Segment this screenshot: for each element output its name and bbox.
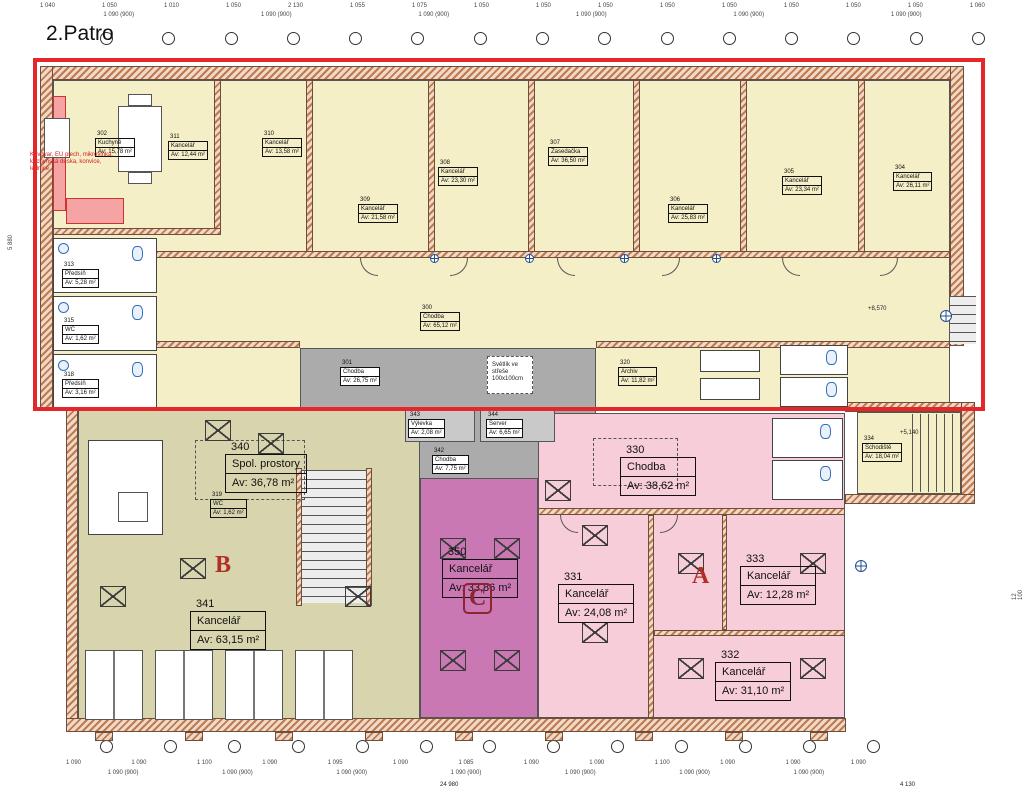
wall-segment bbox=[214, 80, 221, 230]
chair bbox=[128, 94, 152, 106]
desk-cluster bbox=[85, 650, 143, 720]
wall-segment bbox=[633, 80, 640, 253]
room-label: 331KancelářAv: 24,08 m² bbox=[558, 570, 634, 623]
dim-value: 1 090 (900) bbox=[418, 12, 449, 18]
dim-value: 1 090 (900) bbox=[576, 12, 607, 18]
wall-pier bbox=[185, 732, 203, 741]
column-marker bbox=[430, 254, 439, 263]
skylight-note: Světlík ve střeše 100x100cm bbox=[492, 362, 523, 383]
dim-value: 1 090 (900) bbox=[565, 770, 596, 776]
x-marker bbox=[345, 586, 371, 607]
wall-segment bbox=[40, 66, 963, 80]
grid-marker bbox=[598, 32, 611, 45]
dim-value: 1 090 (900) bbox=[793, 770, 824, 776]
wall-pier bbox=[545, 732, 563, 741]
dim-value: 1 090 (900) bbox=[336, 770, 367, 776]
grid-marker bbox=[803, 740, 816, 753]
x-marker bbox=[678, 658, 704, 679]
x-marker bbox=[582, 622, 608, 643]
dim-value: 1 060 bbox=[970, 3, 985, 9]
dim-value: 1 090 bbox=[393, 760, 408, 766]
kitchen-equipment-note: Kávovar, EU plech, mikrovlnka, kuchyňská… bbox=[30, 152, 122, 173]
dim-value: 1 055 bbox=[350, 3, 365, 9]
room-label: 343VýlevkaAv: 2,08 m² bbox=[408, 412, 445, 439]
room-label: 307ZasedačkaAv: 36,50 m² bbox=[548, 140, 588, 167]
dimension-row-bottom: 1 0901 0901 1001 0901 0951 0901 0851 090… bbox=[66, 760, 866, 766]
wall-segment bbox=[722, 515, 727, 630]
grid-marker bbox=[164, 740, 177, 753]
grid-marker bbox=[910, 32, 923, 45]
dim-value: 1 090 bbox=[66, 760, 81, 766]
dimension-total-right: 4 130 bbox=[900, 782, 915, 789]
survey-marker bbox=[940, 310, 952, 322]
toilet-icon bbox=[820, 466, 831, 481]
toilet-icon bbox=[820, 424, 831, 439]
grid-marker bbox=[675, 740, 688, 753]
grid-marker bbox=[356, 740, 369, 753]
wc-room bbox=[780, 377, 848, 407]
dim-value: 1 100 bbox=[197, 760, 212, 766]
room-label: 308KancelářAv: 23,30 m² bbox=[438, 160, 478, 187]
dim-value: 1 050 bbox=[908, 3, 923, 9]
zone-c-letter: C bbox=[463, 583, 492, 614]
dim-value: 1 090 bbox=[851, 760, 866, 766]
room-label: 301ChodbaAv: 26,75 m² bbox=[340, 360, 380, 387]
grid-marker bbox=[287, 32, 300, 45]
grid-marker bbox=[162, 32, 175, 45]
dimension-row-top-sub: 1 090 (900)1 090 (900)1 090 (900)1 090 (… bbox=[40, 12, 985, 18]
toilet-icon bbox=[132, 305, 143, 320]
room-label: 306KancelářAv: 25,83 m² bbox=[668, 197, 708, 224]
grid-marker bbox=[785, 32, 798, 45]
grid-axis-row-bottom bbox=[100, 740, 880, 753]
floor-plan-canvas: 2.Patro 1 0401 0501 0101 0502 1301 0551 … bbox=[0, 0, 1024, 794]
dim-value: 1 050 bbox=[102, 3, 117, 9]
room-label: 315WCAv: 1,62 m² bbox=[62, 318, 99, 345]
desk-cluster bbox=[225, 650, 283, 720]
level-marker-stair: +5,140 bbox=[900, 430, 919, 437]
x-marker bbox=[494, 650, 520, 671]
grid-marker bbox=[972, 32, 985, 45]
grid-marker bbox=[474, 32, 487, 45]
dim-value: 1 050 bbox=[536, 3, 551, 9]
room-label: 332KancelářAv: 31,10 m² bbox=[715, 648, 791, 701]
dim-value: 1 090 (900) bbox=[451, 770, 482, 776]
room-label: 319WCAv: 1,62 m² bbox=[210, 492, 247, 519]
dimension-right: 12 100 bbox=[1012, 588, 1024, 600]
x-marker bbox=[800, 658, 826, 679]
wall-segment bbox=[845, 402, 975, 412]
grid-marker bbox=[739, 740, 752, 753]
grid-marker bbox=[100, 740, 113, 753]
dim-value: 1 090 (900) bbox=[261, 12, 292, 18]
grid-marker bbox=[292, 740, 305, 753]
dim-value: 1 090 (900) bbox=[891, 12, 922, 18]
wall-pier bbox=[725, 732, 743, 741]
wall-pier bbox=[455, 732, 473, 741]
dim-value: 1 090 (900) bbox=[103, 12, 134, 18]
dim-value: 1 090 bbox=[720, 760, 735, 766]
grid-marker bbox=[723, 32, 736, 45]
wall-pier bbox=[365, 732, 383, 741]
x-marker bbox=[582, 525, 608, 546]
dim-value: 1 050 bbox=[226, 3, 241, 9]
column-marker bbox=[712, 254, 721, 263]
wall-segment bbox=[528, 80, 535, 253]
dim-value: 1 040 bbox=[40, 3, 55, 9]
grid-marker bbox=[661, 32, 674, 45]
grid-marker bbox=[411, 32, 424, 45]
grid-marker bbox=[611, 740, 624, 753]
room-label: 344ServerAv: 6,65 m² bbox=[486, 412, 523, 439]
stairwell bbox=[302, 470, 366, 603]
room-label: 341KancelářAv: 63,15 m² bbox=[190, 597, 266, 650]
wall-segment bbox=[961, 402, 975, 502]
room-label: 340Spol. prostoryAv: 36,78 m² bbox=[225, 440, 307, 493]
wall-segment bbox=[53, 228, 221, 235]
dim-value: 1 090 (900) bbox=[679, 770, 710, 776]
wall-pier bbox=[635, 732, 653, 741]
wall-segment bbox=[740, 80, 747, 253]
dimension-row-bottom-sub: 1 090 (900)1 090 (900)1 090 (900)1 090 (… bbox=[66, 770, 866, 776]
room-label: 334SchodištěAv: 18,04 m² bbox=[862, 436, 902, 463]
dimension-row-top: 1 0401 0501 0101 0502 1301 0551 0751 050… bbox=[40, 3, 985, 9]
dim-value: 1 090 bbox=[131, 760, 146, 766]
meeting-table bbox=[700, 378, 760, 400]
room-label: 304KancelářAv: 26,11 m² bbox=[893, 165, 932, 192]
grid-marker bbox=[847, 32, 860, 45]
grid-marker bbox=[867, 740, 880, 753]
room-label: 318PředsíňAv: 3,16 m² bbox=[62, 372, 99, 399]
dim-value: 1 090 bbox=[524, 760, 539, 766]
dim-value: 1 085 bbox=[458, 760, 473, 766]
grid-marker bbox=[536, 32, 549, 45]
wc-room bbox=[772, 418, 843, 458]
room-label: 333KancelářAv: 12,28 m² bbox=[740, 552, 816, 605]
grid-marker bbox=[483, 740, 496, 753]
grid-marker bbox=[547, 740, 560, 753]
sink-icon bbox=[58, 243, 69, 254]
cabinet bbox=[118, 492, 148, 522]
page-title: 2.Patro bbox=[46, 22, 114, 46]
wall-segment bbox=[306, 80, 313, 253]
zone-a-letter: A bbox=[692, 563, 709, 590]
column-marker bbox=[620, 254, 629, 263]
room-label: 310KancelářAv: 13,58 m² bbox=[262, 131, 302, 158]
dim-value: 1 095 bbox=[328, 760, 343, 766]
dim-value: 1 050 bbox=[474, 3, 489, 9]
dim-value: 1 090 bbox=[785, 760, 800, 766]
dim-value: 1 050 bbox=[598, 3, 613, 9]
x-marker bbox=[205, 420, 231, 441]
grid-marker bbox=[228, 740, 241, 753]
zone-b-letter: B bbox=[215, 552, 231, 579]
wall-segment bbox=[538, 508, 845, 515]
x-marker bbox=[545, 480, 571, 501]
room-label: 305KancelářAv: 23,34 m² bbox=[782, 169, 822, 196]
wall-segment bbox=[150, 251, 950, 258]
wall-segment bbox=[66, 410, 78, 732]
dim-value: 1 090 bbox=[589, 760, 604, 766]
dim-value: 1 010 bbox=[164, 3, 179, 9]
room-label: 320ArchivAv: 11,82 m² bbox=[618, 360, 657, 387]
wall-segment bbox=[858, 80, 865, 253]
dim-value: 1 050 bbox=[784, 3, 799, 9]
x-marker bbox=[440, 650, 466, 671]
dim-value: 1 090 (900) bbox=[733, 12, 764, 18]
dim-value: 2 130 bbox=[288, 3, 303, 9]
room-label: 342ChodbaAv: 7,75 m² bbox=[432, 448, 469, 475]
sink-icon bbox=[58, 360, 69, 371]
sink-icon bbox=[58, 302, 69, 313]
grid-marker bbox=[420, 740, 433, 753]
survey-marker bbox=[855, 560, 867, 572]
wc-room bbox=[772, 460, 843, 500]
toilet-icon bbox=[826, 382, 837, 397]
toilet-icon bbox=[826, 350, 837, 365]
dim-value: 1 100 bbox=[655, 760, 670, 766]
wall-segment bbox=[845, 494, 975, 504]
wall-segment bbox=[66, 718, 846, 732]
dimension-total-bottom: 24 980 bbox=[440, 782, 458, 789]
dim-value: 1 075 bbox=[412, 3, 427, 9]
wall-pier bbox=[275, 732, 293, 741]
wall-segment bbox=[648, 515, 654, 718]
wall-pier bbox=[810, 732, 828, 741]
desk-cluster bbox=[295, 650, 353, 720]
dim-value: 1 050 bbox=[722, 3, 737, 9]
toilet-icon bbox=[132, 246, 143, 261]
dim-value: 1 090 bbox=[262, 760, 277, 766]
column-marker bbox=[525, 254, 534, 263]
chair bbox=[128, 172, 152, 184]
grid-marker bbox=[225, 32, 238, 45]
grid-marker bbox=[349, 32, 362, 45]
dim-value: 1 050 bbox=[660, 3, 675, 9]
wall-segment bbox=[428, 80, 435, 253]
wc-room bbox=[780, 345, 848, 375]
grid-axis-row-top bbox=[100, 32, 985, 45]
stair-flight bbox=[950, 296, 976, 344]
skylight-outline: Světlík ve střeše 100x100cm bbox=[487, 356, 533, 394]
x-marker bbox=[100, 586, 126, 607]
wall-segment bbox=[654, 630, 845, 636]
room-label: 309KancelářAv: 21,58 m² bbox=[358, 197, 398, 224]
room-label: 300ChodbaAv: 65,12 m² bbox=[420, 305, 460, 332]
stair-flight bbox=[912, 414, 959, 492]
wall-segment bbox=[596, 341, 950, 348]
dim-value: 1 090 (900) bbox=[108, 770, 139, 776]
wall-pier bbox=[95, 732, 113, 741]
dim-value: 1 050 bbox=[846, 3, 861, 9]
dim-value: 1 090 (900) bbox=[222, 770, 253, 776]
dimension-left: 5 880 bbox=[8, 235, 14, 250]
meeting-table bbox=[700, 350, 760, 372]
desk-cluster bbox=[155, 650, 213, 720]
x-marker bbox=[180, 558, 206, 579]
level-marker-corridor: +8,570 bbox=[868, 306, 887, 313]
kitchen-counter bbox=[66, 198, 124, 224]
toilet-icon bbox=[132, 362, 143, 377]
room-label: 313PředsíňAv: 5,28 m² bbox=[62, 262, 99, 289]
room-label: 311KancelářAv: 12,44 m² bbox=[168, 134, 208, 161]
room-label: 330ChodbaAv: 38,62 m² bbox=[620, 443, 696, 496]
